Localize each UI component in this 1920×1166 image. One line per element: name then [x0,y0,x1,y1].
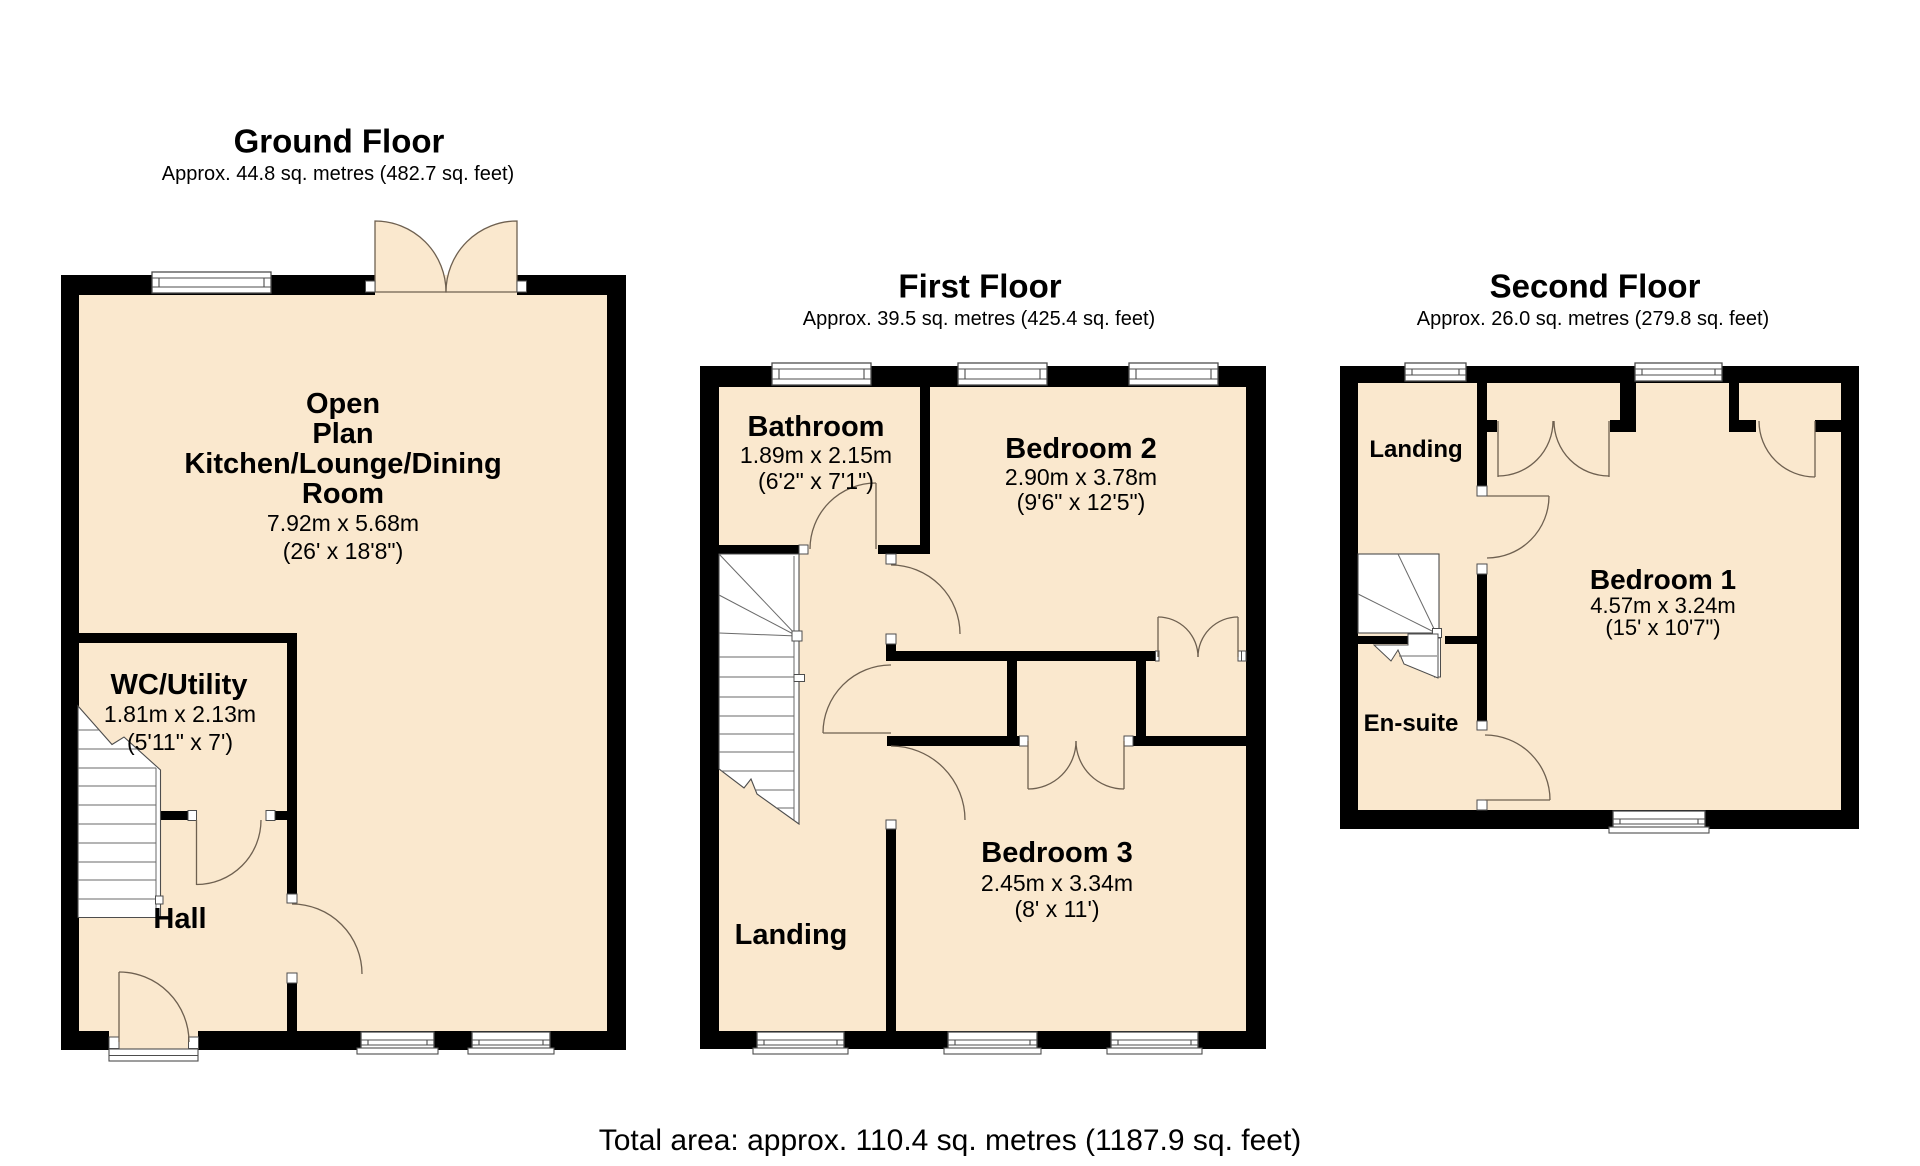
svg-text:2.45m x 3.34m: 2.45m x 3.34m [981,870,1133,896]
svg-text:Plan: Plan [312,418,373,450]
svg-text:En-suite: En-suite [1364,710,1459,737]
svg-text:(8' x 11'): (8' x 11') [1014,896,1099,922]
svg-text:(15' x 10'7"): (15' x 10'7") [1605,615,1720,640]
svg-text:1.81m x 2.13m: 1.81m x 2.13m [104,701,256,727]
svg-text:WC/Utility: WC/Utility [111,669,248,701]
svg-text:Open: Open [306,388,380,420]
svg-text:Landing: Landing [735,919,848,951]
svg-text:2.90m x 3.78m: 2.90m x 3.78m [1005,464,1157,490]
svg-text:Approx. 26.0 sq. metres (279.8: Approx. 26.0 sq. metres (279.8 sq. feet) [1417,308,1769,330]
svg-text:(6'2" x 7'1"): (6'2" x 7'1") [758,468,874,494]
svg-text:Ground Floor: Ground Floor [234,123,445,160]
svg-text:Room: Room [302,478,384,510]
svg-text:Bedroom 2: Bedroom 2 [1005,433,1156,465]
svg-text:Bedroom 3: Bedroom 3 [981,837,1132,869]
svg-text:Approx. 39.5 sq. metres (425.4: Approx. 39.5 sq. metres (425.4 sq. feet) [803,308,1155,330]
svg-text:Hall: Hall [153,903,206,935]
svg-text:(5'11" x 7'): (5'11" x 7') [127,729,233,755]
svg-text:1.89m x 2.15m: 1.89m x 2.15m [740,442,892,468]
svg-text:Second Floor: Second Floor [1490,268,1701,305]
svg-text:Kitchen/Lounge/Dining: Kitchen/Lounge/Dining [184,448,501,480]
svg-text:(26' x 18'8"): (26' x 18'8") [283,538,404,564]
svg-text:Bathroom: Bathroom [748,411,885,443]
svg-text:First Floor: First Floor [898,268,1061,305]
svg-text:Bedroom 1: Bedroom 1 [1590,564,1736,595]
svg-text:Total area: approx. 110.4 sq.: Total area: approx. 110.4 sq. metres (11… [599,1124,1302,1157]
svg-text:7.92m x 5.68m: 7.92m x 5.68m [267,510,419,536]
svg-text:Landing: Landing [1369,436,1462,463]
svg-text:Approx. 44.8 sq. metres (482.7: Approx. 44.8 sq. metres (482.7 sq. feet) [162,163,514,185]
svg-text:(9'6" x 12'5"): (9'6" x 12'5") [1017,489,1146,515]
